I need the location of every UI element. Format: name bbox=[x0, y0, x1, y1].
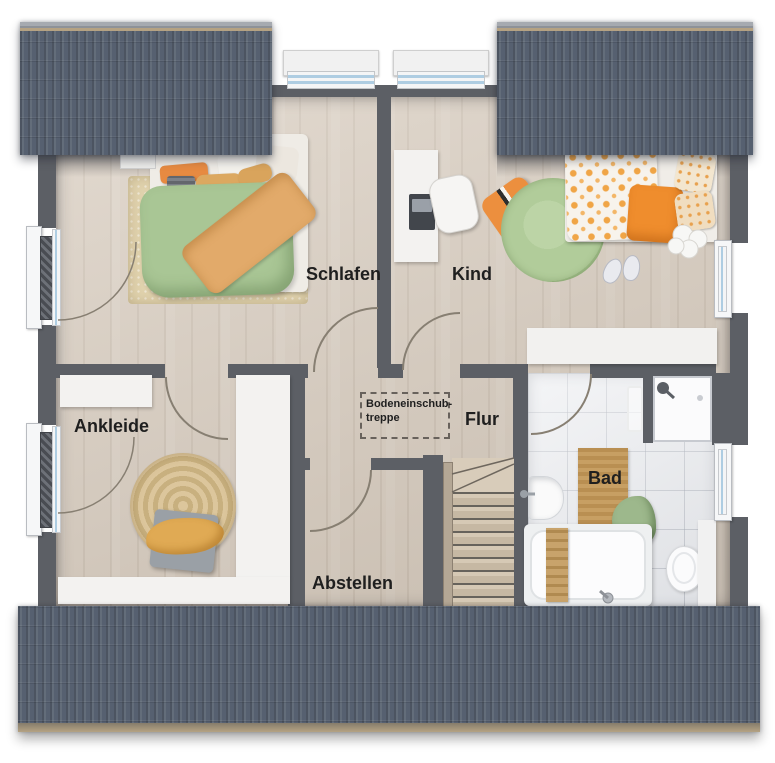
wall-right-lower bbox=[730, 517, 748, 608]
room-label-kind: Kind bbox=[452, 264, 492, 285]
shower-tray bbox=[653, 376, 712, 442]
bad-window-glazing bbox=[718, 449, 727, 515]
bathtub-caddy bbox=[546, 528, 568, 602]
roof-top-left bbox=[20, 22, 272, 155]
floor-plan: Schlafen Kind Ankleide Flur Abstellen Ba… bbox=[0, 0, 775, 763]
kind-window-glazing bbox=[718, 246, 727, 312]
wall-mid-c bbox=[378, 364, 403, 378]
towel-rail bbox=[627, 386, 643, 432]
stairs-treads bbox=[452, 492, 514, 608]
attic-hatch-label-line2: treppe bbox=[366, 412, 400, 424]
stairs-winders bbox=[452, 458, 514, 492]
wardrobe-column bbox=[236, 375, 290, 577]
roof-ridge-top-right bbox=[497, 22, 753, 31]
room-label-schlafen: Schlafen bbox=[306, 264, 381, 285]
kids-blanket-orange bbox=[626, 184, 684, 244]
laptop-screen bbox=[412, 199, 432, 212]
roof-top-right bbox=[497, 22, 753, 155]
room-label-abstellen: Abstellen bbox=[312, 573, 393, 594]
wall-shower bbox=[643, 362, 653, 443]
wall-bathroom-right-inner bbox=[712, 373, 730, 445]
bath-ledge bbox=[698, 520, 716, 606]
kids-pillow-2 bbox=[674, 190, 717, 233]
room-label-flur: Flur bbox=[465, 409, 499, 430]
roof-eave-bottom bbox=[18, 723, 760, 732]
wardrobe-bottom bbox=[58, 577, 290, 604]
ankleide-window-glazing bbox=[52, 426, 61, 533]
wall-stairs-left bbox=[423, 455, 443, 608]
stairs-railing bbox=[443, 462, 453, 610]
attic-hatch-label-line1: Bodeneinschub- bbox=[366, 398, 452, 410]
wall-ankleide-right bbox=[288, 364, 305, 608]
wall-divider-schlafen-kind bbox=[377, 85, 391, 368]
toilet-seat bbox=[672, 552, 696, 584]
attic-hatch-box: Bodeneinschub- treppe bbox=[360, 392, 450, 439]
wall-abstellen-stub-right bbox=[371, 458, 428, 470]
dormer-window-2 bbox=[397, 71, 485, 89]
dormer-window-1 bbox=[287, 71, 375, 89]
schlafen-window-glazing bbox=[52, 229, 61, 326]
room-label-ankleide: Ankleide bbox=[74, 416, 149, 437]
wall-abstellen-stub-left bbox=[288, 458, 310, 470]
wall-left-lower bbox=[38, 532, 56, 608]
kids-sideboard bbox=[527, 328, 717, 364]
kids-pillow-1 bbox=[673, 149, 717, 195]
wardrobe-top bbox=[60, 375, 152, 407]
roof-ridge-top-left bbox=[20, 22, 272, 31]
roof-bottom bbox=[18, 606, 760, 732]
wall-right-middle bbox=[730, 313, 748, 445]
wall-left-middle bbox=[38, 325, 56, 425]
room-label-bad: Bad bbox=[588, 468, 622, 489]
